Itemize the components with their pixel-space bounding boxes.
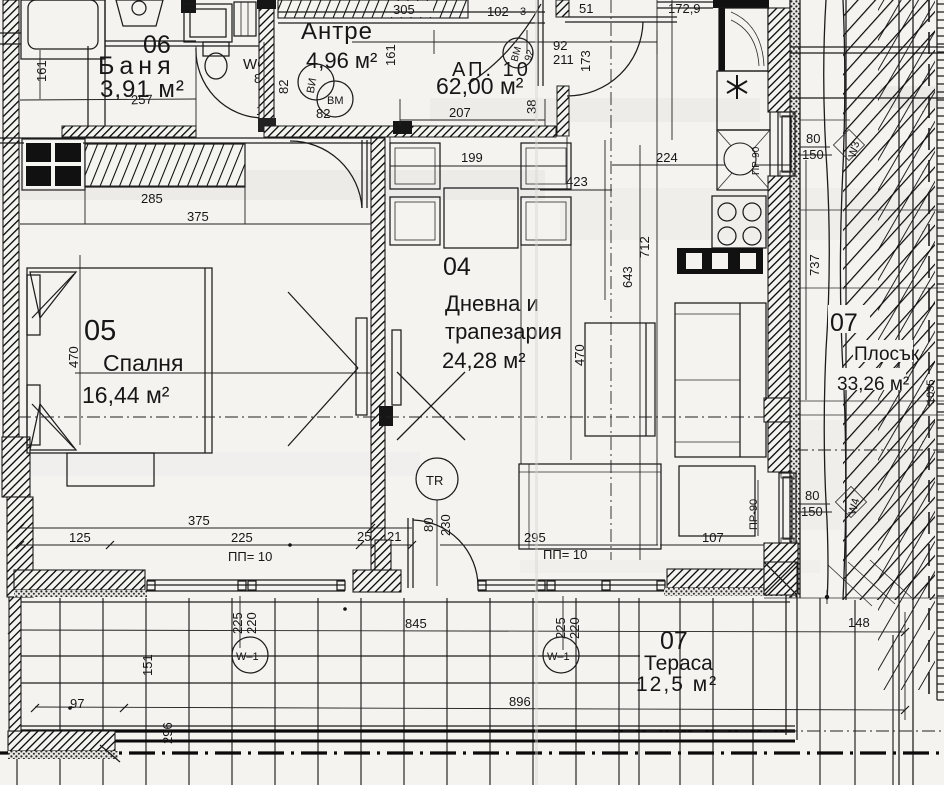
svg-text:Дневна и: Дневна и: [445, 291, 539, 316]
svg-text:211: 211: [553, 52, 574, 67]
svg-text:24,28 м²: 24,28 м²: [442, 348, 526, 373]
svg-text:82: 82: [276, 80, 291, 94]
svg-text:Тераса: Тераса: [644, 652, 713, 675]
svg-text:1035: 1035: [925, 380, 937, 404]
svg-text:225: 225: [231, 530, 253, 545]
svg-text:82: 82: [316, 106, 330, 121]
svg-text:80: 80: [421, 518, 436, 532]
svg-text:305: 305: [393, 2, 415, 17]
svg-text:ПП= 10: ПП= 10: [543, 547, 587, 562]
svg-text:102: 102: [487, 4, 509, 19]
svg-text:Антре: Антре: [301, 18, 373, 45]
svg-text:12,5 м²: 12,5 м²: [636, 673, 718, 696]
svg-text:150: 150: [801, 504, 823, 519]
svg-text:80: 80: [806, 131, 820, 146]
svg-text:80: 80: [805, 488, 819, 503]
svg-text:896: 896: [509, 694, 531, 709]
svg-text:225: 225: [553, 617, 568, 639]
svg-text:125: 125: [69, 530, 91, 545]
svg-text:07: 07: [660, 627, 688, 655]
svg-text:TR: TR: [426, 473, 443, 488]
svg-text:107: 107: [702, 530, 724, 545]
svg-text:148: 148: [848, 615, 870, 630]
svg-text:трапезария: трапезария: [445, 319, 562, 344]
svg-text:ПР-90: ПР-90: [751, 146, 762, 175]
svg-text:4,96 м²: 4,96 м²: [306, 48, 377, 73]
svg-text:737: 737: [807, 254, 822, 276]
svg-text:220: 220: [567, 617, 582, 639]
svg-text:375: 375: [187, 209, 209, 224]
svg-text:151: 151: [140, 654, 155, 676]
svg-text:ПП= 10: ПП= 10: [228, 549, 272, 564]
svg-text:173: 173: [578, 50, 593, 72]
svg-text:712: 712: [637, 236, 652, 258]
svg-text:Спалня: Спалня: [103, 350, 183, 376]
svg-text:05: 05: [84, 315, 116, 347]
svg-text:470: 470: [572, 344, 587, 366]
svg-text:161: 161: [34, 60, 49, 82]
svg-text:3: 3: [520, 6, 526, 18]
svg-text:225: 225: [230, 612, 245, 634]
svg-text:33,26 м²: 33,26 м²: [837, 374, 909, 395]
svg-text:296: 296: [160, 722, 175, 744]
svg-text:25: 25: [357, 529, 371, 544]
svg-text:97: 97: [70, 696, 84, 711]
svg-text:62,00 м²: 62,00 м²: [436, 73, 524, 99]
svg-text:16,44 м²: 16,44 м²: [82, 382, 170, 408]
svg-text:04: 04: [443, 253, 471, 281]
svg-text:375: 375: [188, 513, 210, 528]
svg-text:150: 150: [802, 147, 824, 162]
svg-text:W–1: W–1: [547, 651, 570, 663]
svg-text:07: 07: [830, 309, 858, 337]
svg-text:199: 199: [461, 150, 483, 165]
svg-text:161: 161: [383, 44, 398, 66]
svg-text:845: 845: [405, 616, 427, 631]
svg-text:423: 423: [566, 174, 588, 189]
svg-text:W–1: W–1: [236, 651, 259, 663]
svg-text:295: 295: [524, 530, 546, 545]
svg-text:51: 51: [579, 1, 593, 16]
svg-text:207: 207: [449, 105, 471, 120]
svg-text:224: 224: [656, 150, 678, 165]
svg-text:Плосък: Плосък: [854, 344, 920, 365]
svg-text:285: 285: [141, 191, 163, 206]
svg-text:220: 220: [244, 612, 259, 634]
svg-text:643: 643: [620, 266, 635, 288]
svg-text:470: 470: [66, 346, 81, 368]
svg-text:92: 92: [553, 38, 567, 53]
